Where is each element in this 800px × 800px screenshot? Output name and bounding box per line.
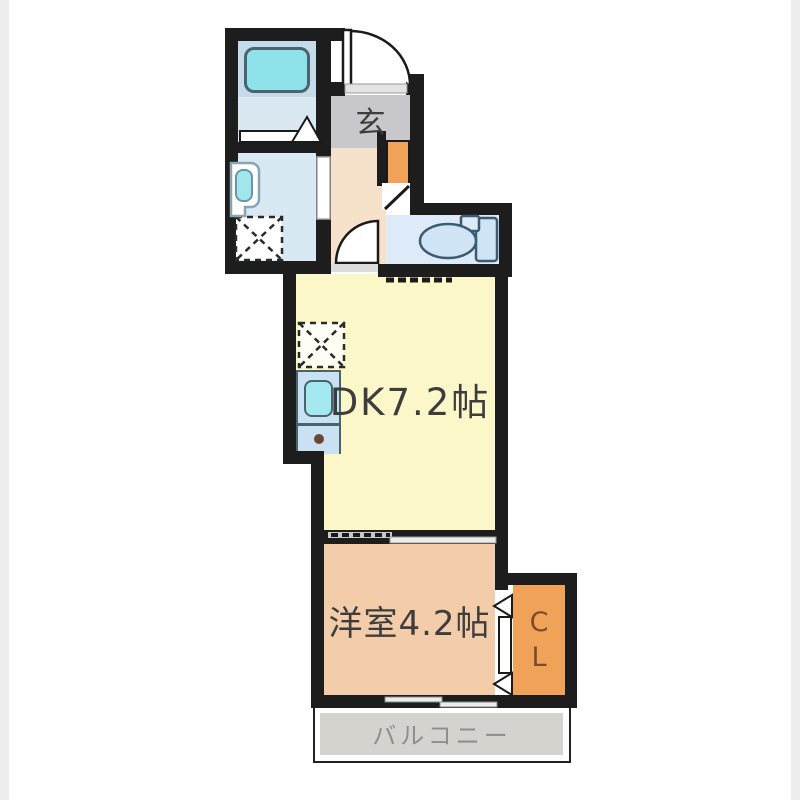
closet-folding-door (494, 595, 512, 695)
hallway-dk-door (331, 221, 378, 272)
balcony-window (385, 697, 497, 707)
closet-label-c: C (530, 605, 549, 640)
washbasin (231, 163, 259, 216)
entrance-label: 玄 (331, 95, 410, 145)
washroom-sliding-door (317, 157, 330, 219)
dk-label: DK7.2帖 (315, 377, 505, 421)
entrance-door (343, 30, 410, 93)
toilet-door (382, 183, 410, 210)
western-room-label: 洋室4.2帖 (324, 598, 495, 642)
closet-label: C L (513, 585, 565, 695)
refrigerator-space (299, 323, 344, 367)
bathroom-folding-door (240, 117, 321, 142)
washing-machine-space (236, 217, 282, 260)
balcony-label: バルコニー (320, 712, 564, 755)
floor-plan: 玄 DK7.2帖 洋室4.2帖 C L バルコニー (0, 0, 800, 800)
dk-sliding-partition (328, 532, 496, 543)
toilet-icon (420, 216, 497, 261)
closet-label-l: L (531, 640, 546, 675)
